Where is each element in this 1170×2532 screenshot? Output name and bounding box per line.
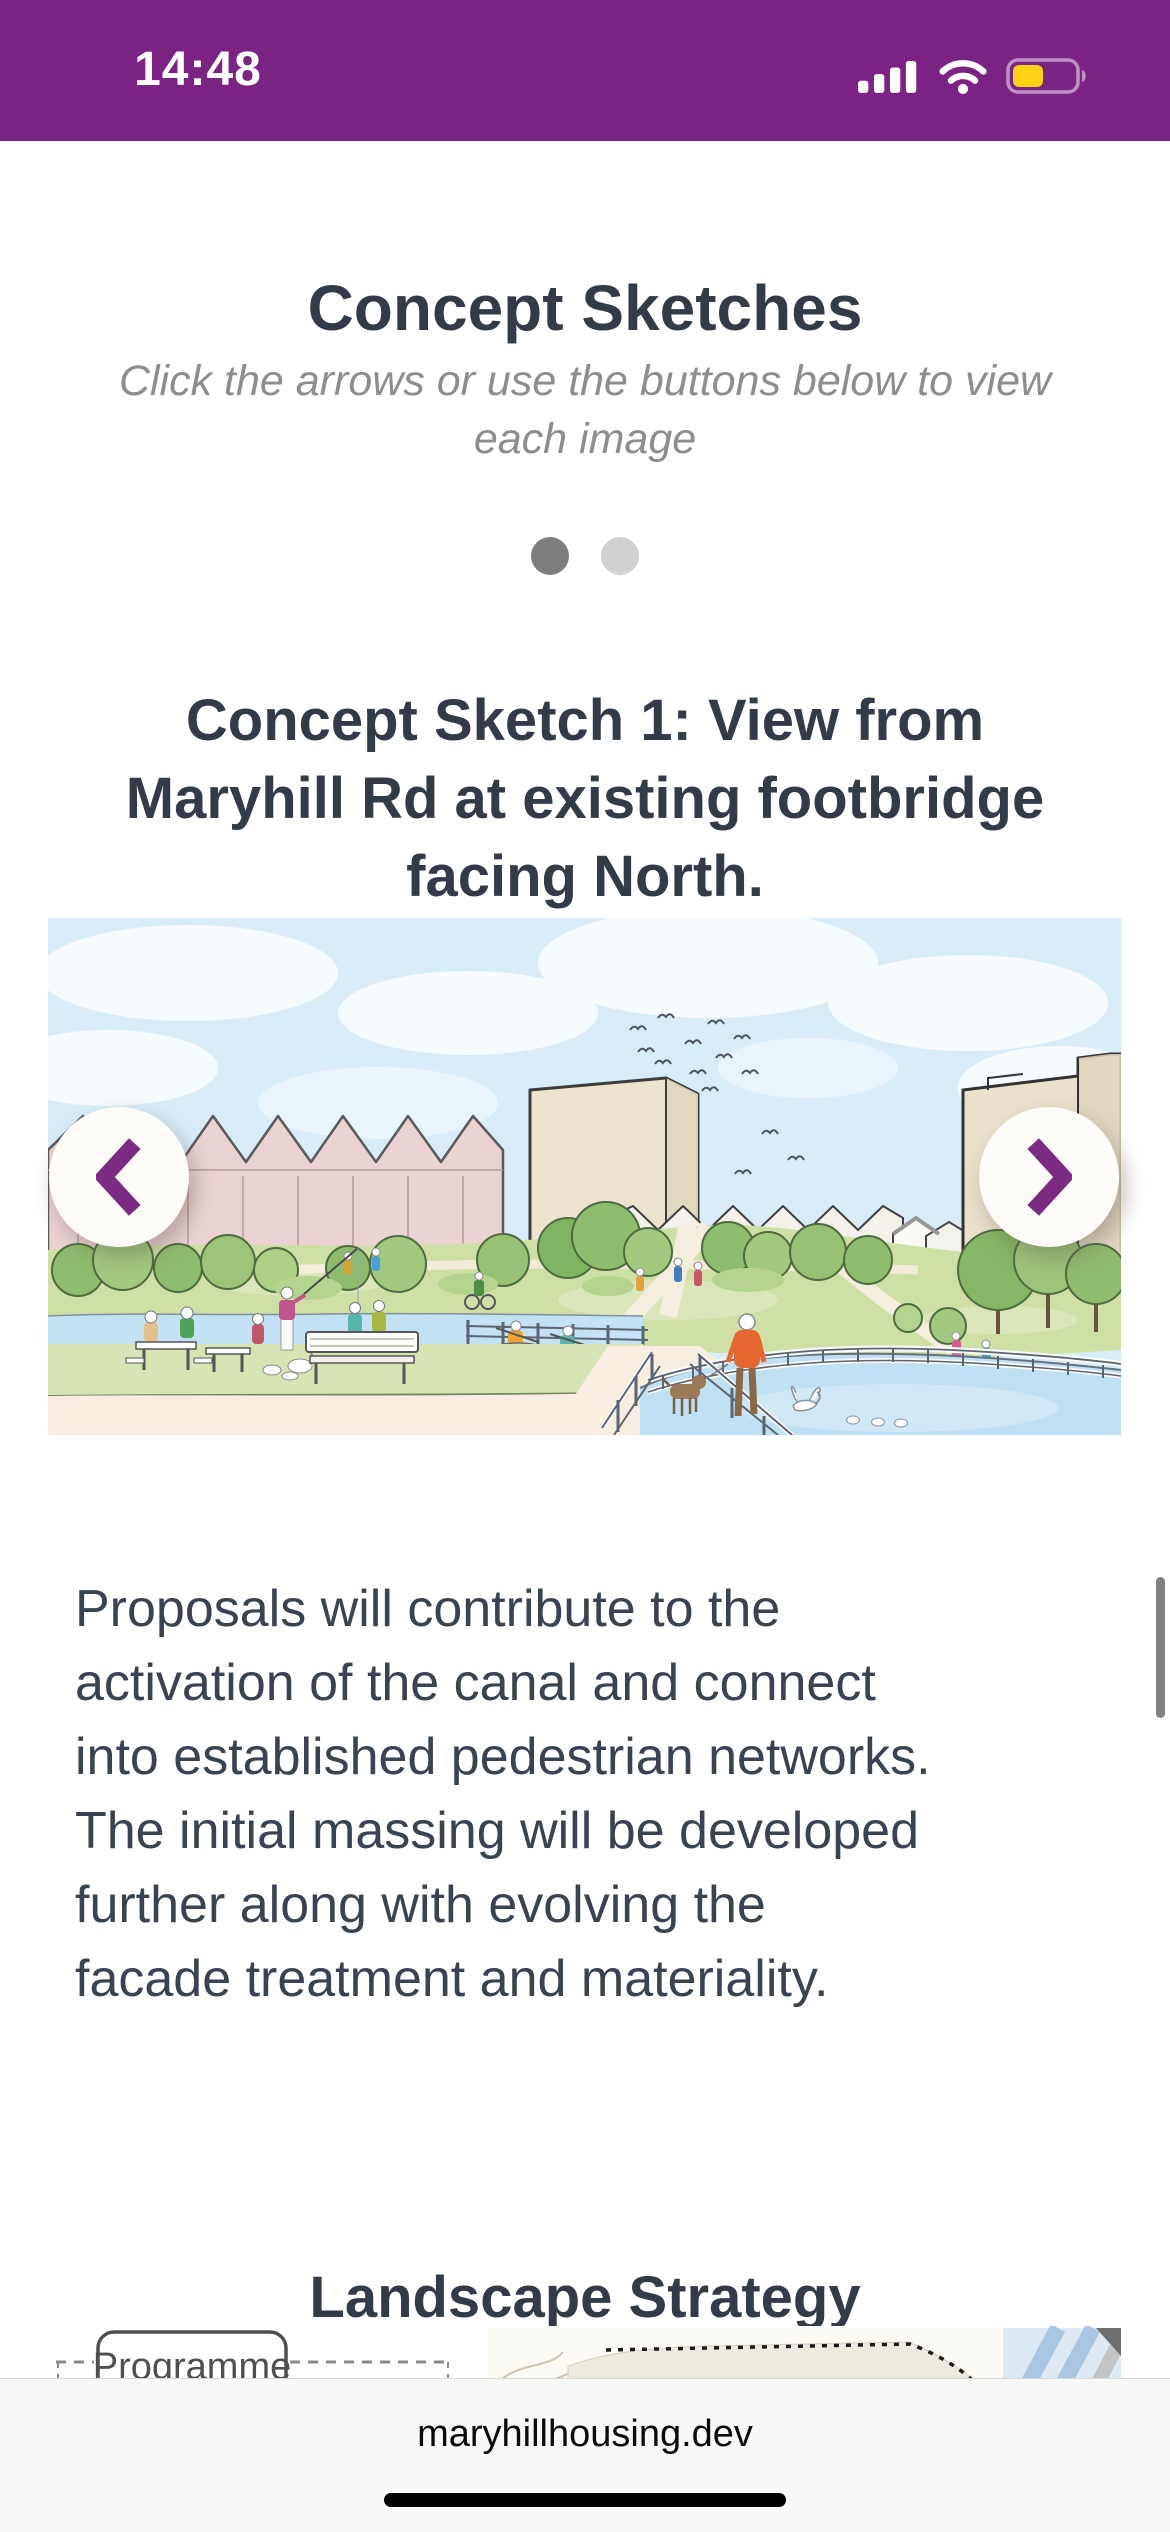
page-scrollbar-thumb[interactable] [1156, 1577, 1165, 1718]
cellular-signal-icon [858, 59, 920, 93]
slide-title: Concept Sketch 1: View from Maryhill Rd … [0, 682, 1170, 916]
chevron-left-icon [96, 1138, 142, 1216]
carousel-dot-2[interactable] [601, 537, 639, 575]
section-title: Landscape Strategy [0, 2264, 1170, 2331]
wifi-icon [939, 58, 987, 94]
carousel-next-button[interactable] [979, 1107, 1119, 1247]
page-title: Concept Sketches [0, 271, 1170, 345]
home-indicator[interactable] [384, 2493, 786, 2507]
carousel-dot-1[interactable] [531, 537, 569, 575]
carousel-prev-button[interactable] [49, 1107, 189, 1247]
browser-url[interactable]: maryhillhousing.dev [0, 2413, 1170, 2456]
carousel-dots [0, 537, 1170, 575]
battery-icon [1006, 57, 1090, 95]
status-bar: 14:48 [0, 0, 1170, 141]
browser-bottom-bar: maryhillhousing.dev [0, 2378, 1170, 2532]
chevron-right-icon [1026, 1138, 1072, 1216]
status-icons [858, 56, 1090, 96]
phone-screen: 14:48 Concept Sketches Click the arrows … [0, 0, 1170, 2532]
image-carousel [48, 918, 1121, 1435]
status-time: 14:48 [78, 42, 318, 97]
body-paragraph: Proposals will contribute to the activat… [75, 1572, 1115, 2016]
page-subtitle: Click the arrows or use the buttons belo… [0, 352, 1170, 468]
concept-sketch-illustration [48, 918, 1121, 1435]
